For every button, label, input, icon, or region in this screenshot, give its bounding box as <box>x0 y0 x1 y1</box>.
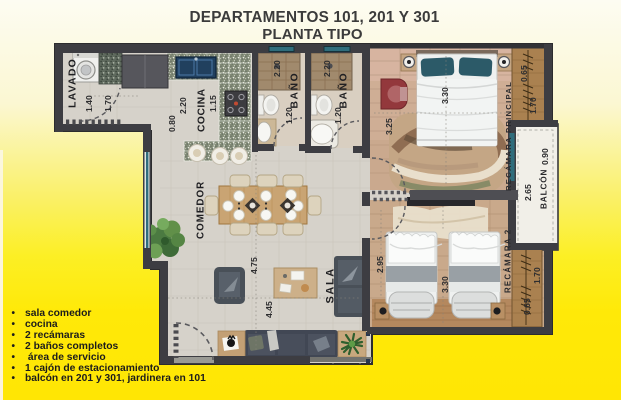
svg-text:3.30: 3.30 <box>440 276 450 293</box>
svg-text:COCINA: COCINA <box>197 88 208 132</box>
svg-text:0.80: 0.80 <box>167 115 177 132</box>
svg-text:3.25: 3.25 <box>384 118 394 135</box>
svg-text:1.20: 1.20 <box>333 107 343 124</box>
svg-text:1.70: 1.70 <box>103 95 113 112</box>
svg-text:BALCÓN: BALCÓN <box>538 169 549 209</box>
svg-text:1.15: 1.15 <box>208 95 218 112</box>
svg-text:1.20: 1.20 <box>284 107 294 124</box>
svg-text:4.45: 4.45 <box>264 301 274 318</box>
svg-text:2.20: 2.20 <box>178 97 188 114</box>
svg-text:2.65: 2.65 <box>523 184 533 201</box>
svg-text:0.65: 0.65 <box>519 65 529 82</box>
svg-text:1.70: 1.70 <box>532 267 542 284</box>
svg-text:2.20: 2.20 <box>322 60 332 77</box>
svg-text:1.40: 1.40 <box>84 95 94 112</box>
svg-text:4.75: 4.75 <box>249 257 259 274</box>
svg-text:BAÑO: BAÑO <box>337 72 350 109</box>
svg-text:COMEDOR: COMEDOR <box>196 181 207 239</box>
svg-text:RECÁMARA PRINCIPAL: RECÁMARA PRINCIPAL <box>504 81 513 191</box>
svg-text:1.70: 1.70 <box>528 97 538 114</box>
svg-text:SALA: SALA <box>325 267 337 303</box>
svg-text:RECÁMARA 2: RECÁMARA 2 <box>504 229 513 293</box>
svg-text:2.20: 2.20 <box>272 60 282 77</box>
svg-text:0.90: 0.90 <box>540 148 550 165</box>
svg-text:LAVADO: LAVADO <box>67 58 79 108</box>
svg-text:3.30: 3.30 <box>440 87 450 104</box>
svg-text:BAÑO: BAÑO <box>288 72 301 109</box>
svg-text:0.65: 0.65 <box>522 298 532 315</box>
svg-text:2.95: 2.95 <box>375 256 385 273</box>
